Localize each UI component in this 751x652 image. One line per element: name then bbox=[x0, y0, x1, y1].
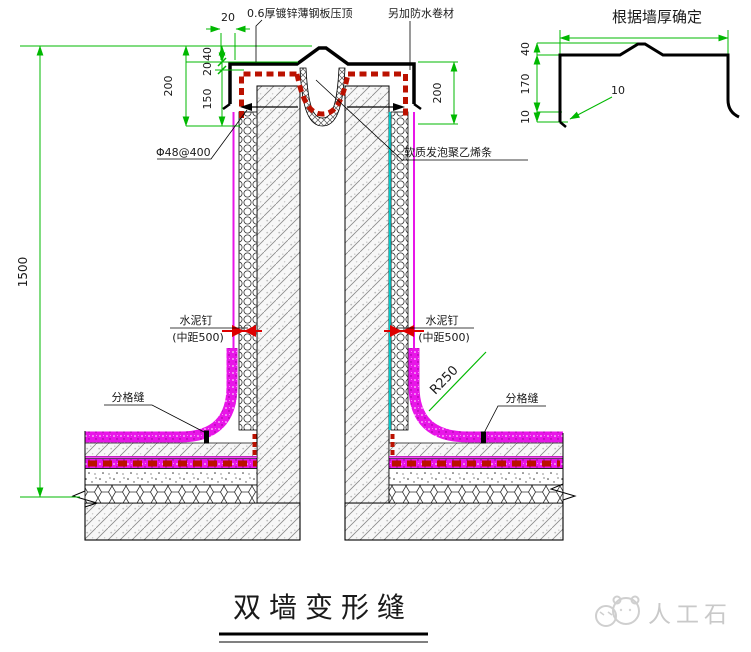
profile-dim-40: 40 bbox=[519, 42, 532, 56]
profile-dim-10-hook: 10 bbox=[611, 84, 625, 97]
profile-dim-10-side: 10 bbox=[519, 110, 532, 124]
screed-layer-right bbox=[389, 443, 563, 457]
construction-detail-sheet: 20 40 20 150 200 200 1500 0.6厚镀锌薄钢板压顶 另加… bbox=[0, 0, 751, 652]
profile-title: 根据墙厚确定 bbox=[612, 8, 702, 26]
floor-slab-left bbox=[85, 503, 300, 540]
dim-cap-40: 40 bbox=[201, 47, 214, 61]
leveling-layer-right bbox=[389, 469, 563, 486]
label-nail-left-spacing: (中距500) bbox=[172, 331, 224, 344]
watermark-text: 人工石 bbox=[648, 602, 732, 628]
label-anchor: Φ48@400 bbox=[156, 146, 211, 159]
label-foam-strip: 软质发泡聚乙烯条 bbox=[404, 145, 492, 159]
dim-cap-150: 150 bbox=[201, 89, 214, 110]
insulation-board-layer-left bbox=[85, 485, 257, 503]
dim-top-20: 20 bbox=[221, 11, 235, 24]
dim-wall-1500: 1500 bbox=[16, 257, 30, 288]
dim-cap-20: 20 bbox=[201, 62, 214, 76]
screed-layer-left bbox=[85, 443, 257, 457]
label-coping: 0.6厚镀锌薄钢板压顶 bbox=[247, 6, 353, 20]
drawing-title: 双墙变形缝 bbox=[233, 591, 413, 624]
drawing-title-block: 双墙变形缝 bbox=[219, 591, 428, 642]
label-nail-right: 水泥钉 bbox=[426, 314, 459, 327]
detail-drawing-canvas: 20 40 20 150 200 200 1500 0.6厚镀锌薄钢板压顶 另加… bbox=[0, 0, 751, 652]
insulation-column-left bbox=[239, 112, 257, 430]
label-nail-right-spacing: (中距500) bbox=[418, 331, 470, 344]
label-membrane: 另加防水卷材 bbox=[388, 6, 454, 20]
concrete-wall-left bbox=[257, 86, 300, 503]
joint-notch-right bbox=[481, 432, 486, 444]
label-joint-right: 分格缝 bbox=[506, 391, 539, 405]
dim-right-200: 200 bbox=[431, 83, 444, 104]
leveling-layer-left bbox=[85, 469, 257, 486]
profile-dim-170: 170 bbox=[519, 74, 532, 95]
dim-cap-200: 200 bbox=[162, 76, 175, 97]
floor-slab-right bbox=[345, 503, 563, 540]
insulation-board-layer-right bbox=[389, 485, 563, 503]
label-joint-left: 分格缝 bbox=[112, 390, 145, 404]
label-nail-left: 水泥钉 bbox=[180, 314, 213, 327]
concrete-wall-right bbox=[345, 86, 389, 503]
